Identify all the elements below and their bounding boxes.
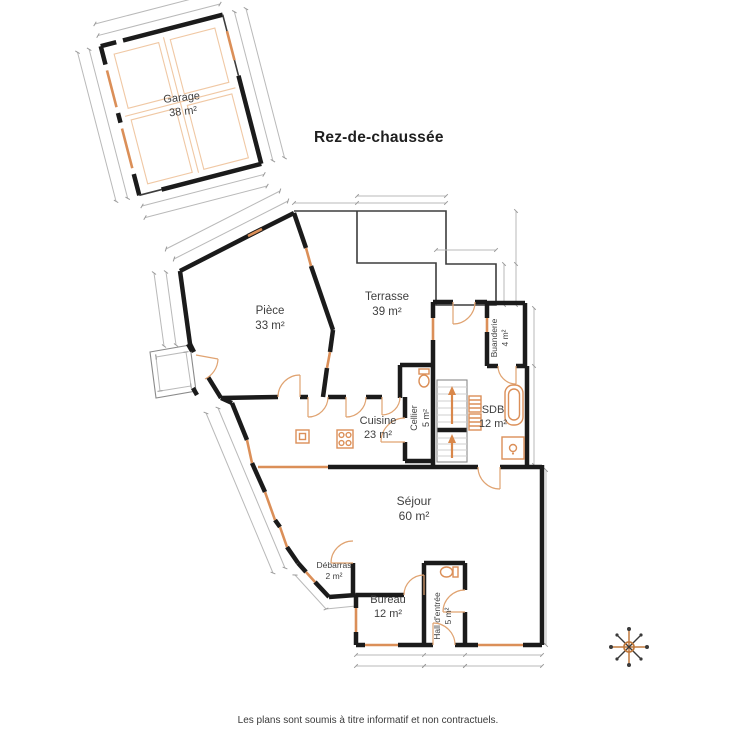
room-area: 2 m² — [326, 571, 343, 581]
floor-plan-drawing: Garage38 m²Pièce33 m²Terrasse39 m²Buande… — [0, 0, 736, 736]
footer-disclaimer: Les plans sont soumis à titre informatif… — [0, 715, 736, 726]
room-area: 12 m² — [374, 608, 402, 620]
room-area: 33 m² — [255, 320, 285, 332]
bathtub-icon — [505, 385, 523, 425]
room-area: 23 m² — [364, 429, 392, 441]
toilet-icon-cellier — [419, 369, 429, 387]
room-name: Séjour — [397, 494, 432, 508]
staircase — [437, 380, 467, 462]
toilet-icon-hall — [441, 567, 459, 577]
room-name: Bureau — [370, 594, 405, 606]
room-area: 4 m² — [500, 329, 510, 346]
shower-icon — [502, 437, 524, 459]
room-name: Cellier — [409, 405, 419, 431]
room-label: Cellier5 m² — [409, 405, 431, 431]
room-area: 5 m² — [443, 607, 453, 624]
room-name: Débarras — [317, 560, 352, 570]
room-label: Bureau12 m² — [370, 594, 405, 620]
room-name: SDB — [482, 404, 505, 416]
room-name: Buanderie — [489, 318, 499, 357]
room-name: Cuisine — [360, 415, 397, 427]
room-label: Buanderie4 m² — [489, 318, 510, 357]
room-label: Garage38 m² — [163, 90, 202, 120]
room-label: SDB12 m² — [479, 404, 507, 430]
room-area: 39 m² — [372, 306, 402, 318]
room-label: Débarras2 m² — [317, 560, 352, 581]
room-label: Pièce33 m² — [255, 305, 285, 332]
room-area: 38 m² — [169, 104, 199, 119]
hob-sink-icon — [337, 430, 353, 448]
compass-rose-icon — [609, 627, 649, 667]
room-label: Séjour60 m² — [397, 494, 432, 523]
room-area: 12 m² — [479, 418, 507, 430]
room-name: Terrasse — [365, 291, 409, 303]
balcony-outline — [150, 344, 197, 398]
stove-icon — [296, 430, 309, 443]
room-labels: Garage38 m²Pièce33 m²Terrasse39 m²Buande… — [163, 90, 510, 640]
room-label: Cuisine23 m² — [360, 415, 397, 441]
room-name: Pièce — [256, 305, 285, 317]
room-area: 60 m² — [399, 509, 430, 523]
page-title: Rez-de-chaussée — [314, 129, 444, 147]
floor-plan-page: Garage38 m²Pièce33 m²Terrasse39 m²Buande… — [0, 0, 736, 736]
room-area: 5 m² — [421, 409, 431, 427]
room-label: Hall d'entrée5 m² — [432, 592, 453, 640]
room-name: Hall d'entrée — [432, 592, 442, 640]
fixtures — [296, 369, 524, 577]
room-label: Terrasse39 m² — [365, 291, 409, 318]
